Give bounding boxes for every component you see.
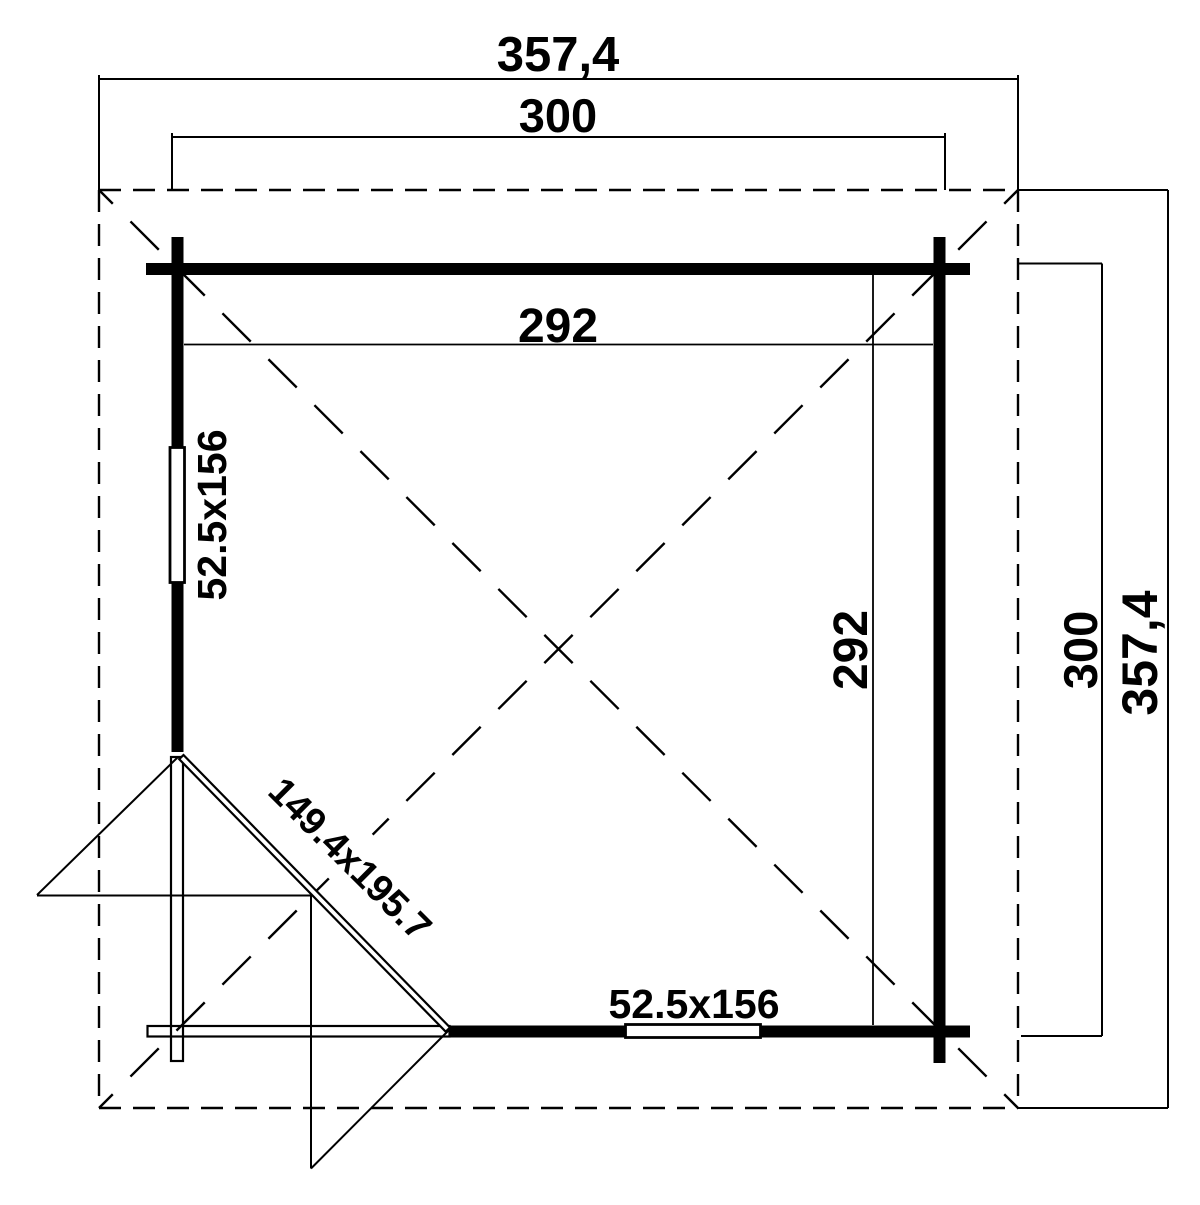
svg-text:292: 292 <box>518 300 598 353</box>
svg-text:357,4: 357,4 <box>497 28 620 82</box>
svg-text:292: 292 <box>825 610 878 690</box>
svg-text:52.5x156: 52.5x156 <box>608 981 779 1027</box>
svg-text:300: 300 <box>519 89 597 142</box>
svg-text:52.5x156: 52.5x156 <box>189 429 235 600</box>
svg-text:300: 300 <box>1054 611 1107 689</box>
svg-text:357,4: 357,4 <box>1112 590 1168 715</box>
